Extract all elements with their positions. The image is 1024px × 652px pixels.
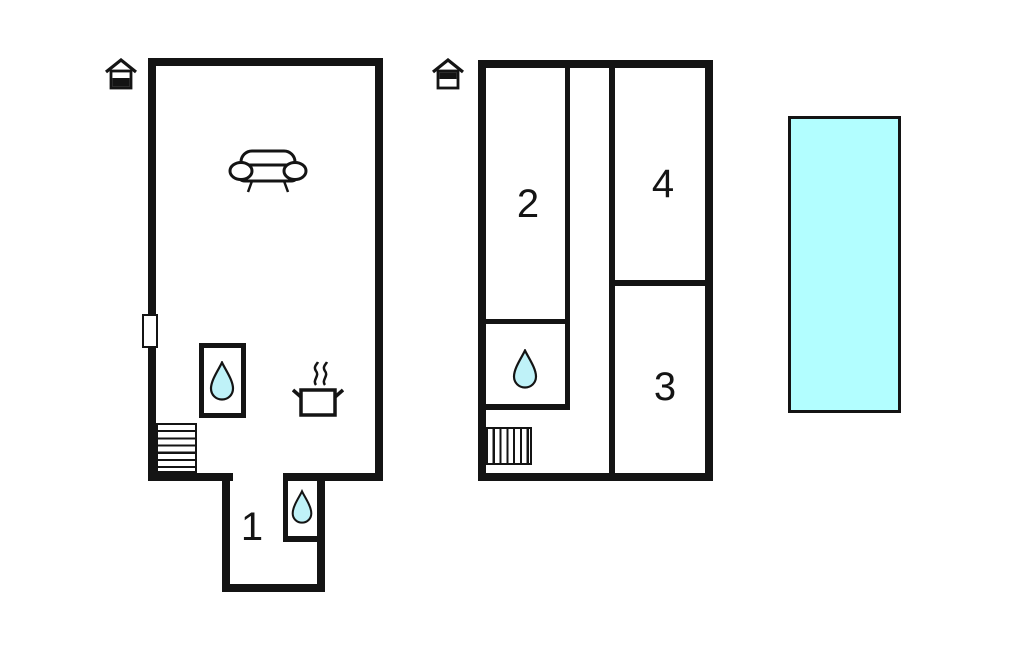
ground-floor-plan <box>148 58 383 481</box>
room-4-label: 4 <box>652 164 674 204</box>
ground-floor-stairs <box>156 423 197 473</box>
window <box>142 314 158 348</box>
room-2-label: 2 <box>517 184 539 224</box>
water-drop-icon <box>209 361 235 401</box>
room-3-label: 3 <box>654 367 676 407</box>
corridor-right-wall <box>609 66 615 473</box>
sofa-icon <box>228 148 308 195</box>
house-upper-floor-icon <box>431 58 465 91</box>
swimming-pool <box>788 116 901 413</box>
upper-bathroom-bottom-wall <box>486 404 570 410</box>
room4-room3-wall <box>615 280 705 286</box>
house-ground-floor-icon <box>104 58 138 91</box>
annex-doorway-opening <box>233 473 283 481</box>
room2-bathroom-wall <box>486 319 565 324</box>
water-drop-icon <box>512 349 538 389</box>
upper-floor-plan <box>478 60 713 481</box>
floor-plan-canvas: 1 2 4 3 <box>0 0 1024 652</box>
stove-icon <box>292 358 344 418</box>
room-1-label: 1 <box>241 507 263 547</box>
corridor-left-wall <box>565 66 570 410</box>
upper-floor-stairs <box>486 427 532 465</box>
water-drop-icon <box>291 489 313 525</box>
